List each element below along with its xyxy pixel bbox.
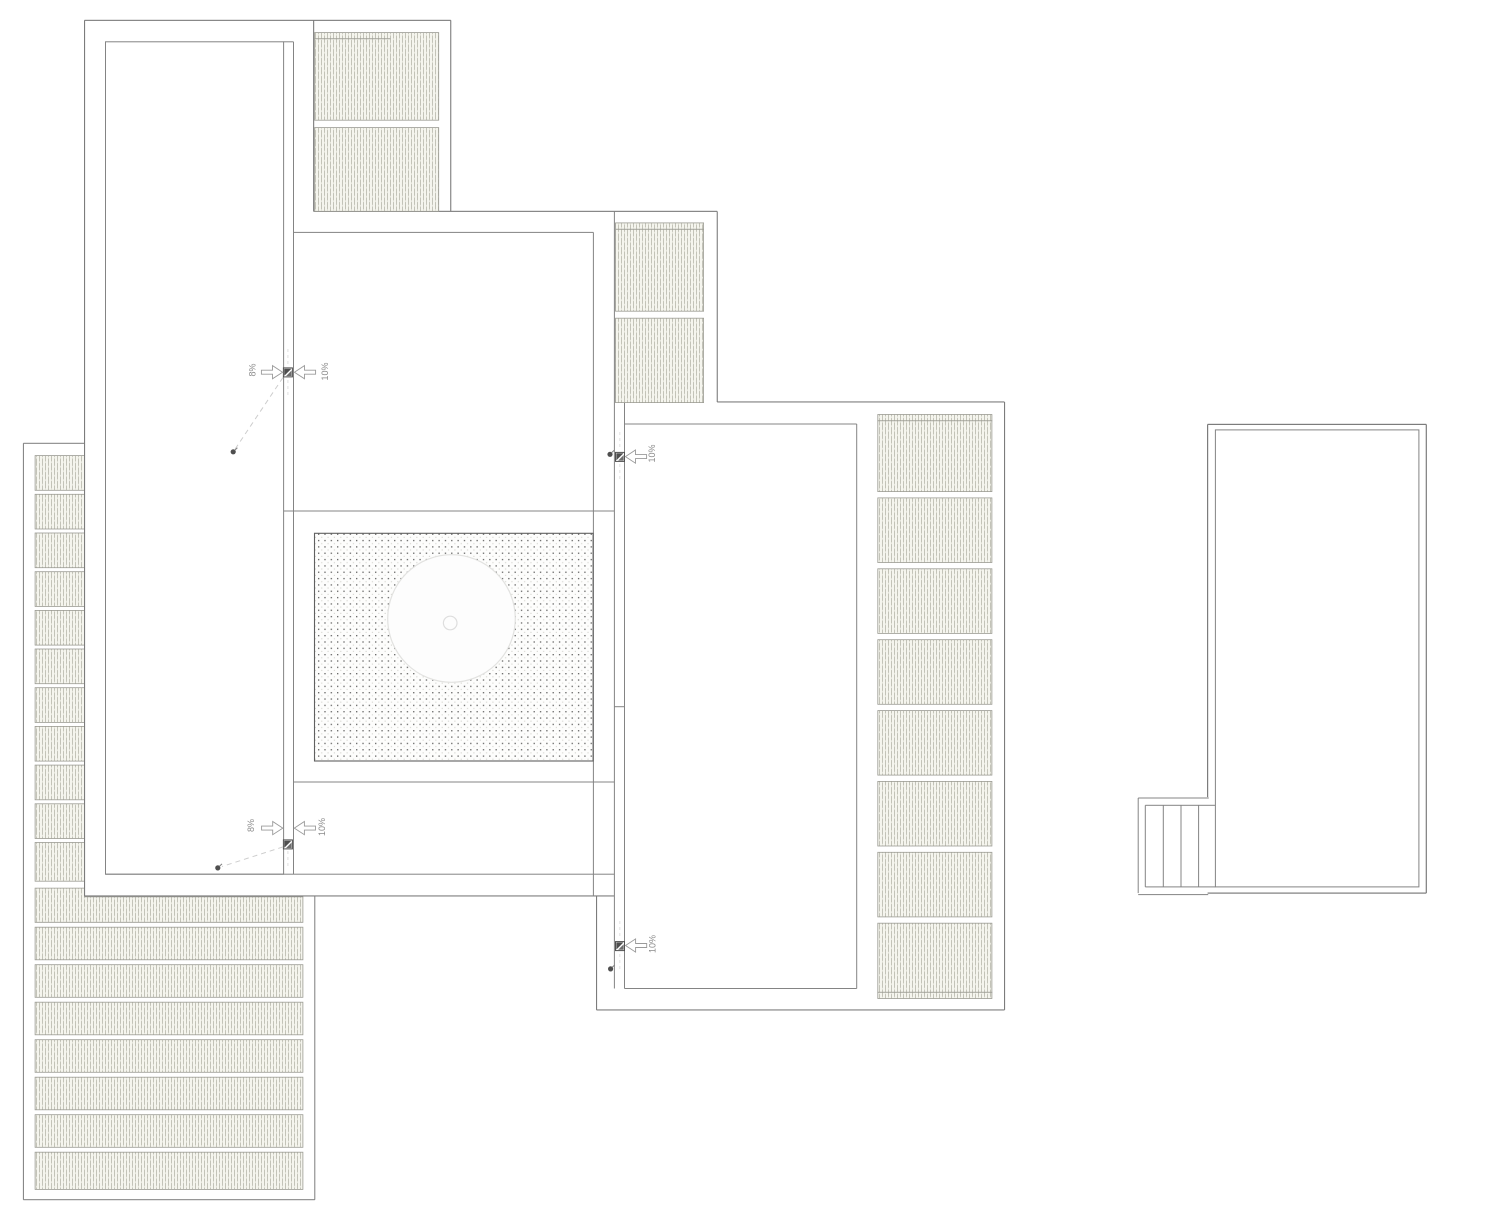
- svg-text:8%: 8%: [248, 363, 258, 376]
- svg-text:10%: 10%: [320, 362, 330, 380]
- svg-text:10%: 10%: [317, 818, 327, 836]
- svg-text:10%: 10%: [647, 444, 657, 462]
- svg-text:10%: 10%: [648, 935, 658, 953]
- svg-text:8%: 8%: [246, 819, 256, 832]
